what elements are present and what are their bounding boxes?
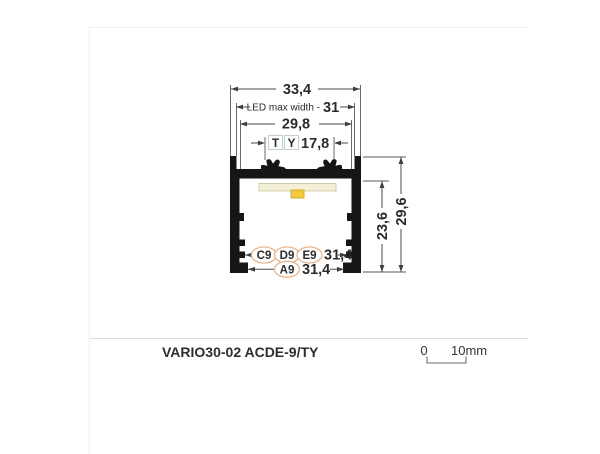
dim-total-width: 33,4 [231, 82, 360, 98]
dim-grooves: C9 D9 E9 A9 31,4 31,4 [245, 247, 352, 278]
tag-y-label: Y [287, 136, 295, 150]
profile-left-tooth-1 [239, 240, 245, 247]
dim-heights: 29,6 23,6 [363, 157, 410, 272]
variant-a9-label: A9 [280, 264, 295, 276]
profile-left-tooth-2 [239, 252, 245, 259]
dim-clip-spacing: T Y 17,8 [251, 136, 348, 152]
variant-d9-label: D9 [280, 250, 295, 262]
dim-clip-spacing-value: 17,8 [301, 136, 329, 152]
dim-groove-a-value: 31,4 [302, 262, 330, 278]
profile-right-notch [347, 213, 352, 221]
dim-led-max-width-label: LED max width - [247, 103, 320, 114]
tag-t-label: T [272, 136, 280, 150]
mounting-clip-left [261, 159, 286, 170]
variant-e9-label: E9 [302, 250, 316, 262]
profile-left-foot [239, 263, 248, 274]
profile-left-wall [230, 178, 240, 273]
profile-right-tooth-1 [346, 240, 352, 247]
profile-left-notch [239, 213, 244, 221]
profile-right-foot [343, 263, 352, 274]
dim-led-max-width: LED max width - 31 [236, 100, 355, 116]
dim-total-width-value: 33,4 [283, 82, 311, 98]
dim-opening-width-value: 29,8 [282, 117, 310, 133]
product-name: VARIO30-02 ACDE-9/TY [162, 344, 319, 360]
dim-total-height-value: 29,6 [394, 197, 410, 225]
profile-right-wall [352, 178, 362, 273]
dim-opening-width: 29,8 [240, 117, 352, 133]
dim-inner-height-value: 23,6 [375, 212, 391, 240]
dim-led-max-width-value: 31 [323, 100, 339, 116]
profile-drawing-page: 33,4 LED max width - 31 29,8 T Y 17,8 [0, 0, 600, 454]
technical-drawing-canvas: 33,4 LED max width - 31 29,8 T Y 17,8 [0, 0, 600, 454]
variant-c9-label: C9 [257, 250, 272, 262]
led-chip [291, 190, 304, 198]
mounting-clip-right [317, 159, 342, 170]
scalebar-zero-label: 0 [420, 343, 427, 358]
scalebar-ten-label: 10mm [451, 343, 487, 358]
footer: VARIO30-02 ACDE-9/TY 0 10mm [90, 339, 528, 364]
profile-top-bar [230, 169, 361, 179]
